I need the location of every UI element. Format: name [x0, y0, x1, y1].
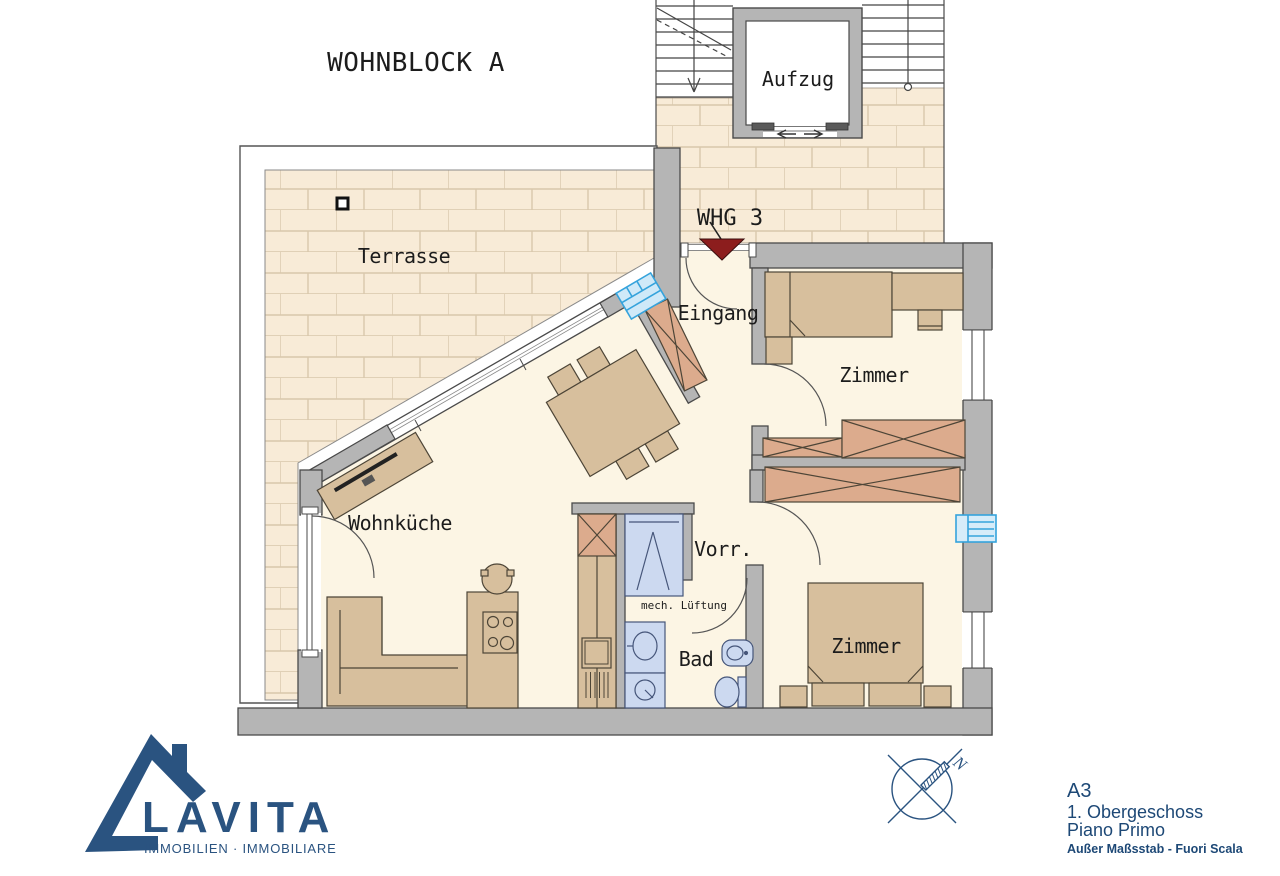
elevator: Aufzug — [733, 8, 862, 138]
building-title: WOHNBLOCK A — [327, 48, 505, 78]
stairs-left — [656, 0, 733, 97]
compass-rose: N — [888, 749, 972, 823]
floor-name-german: 1. Obergeschoss — [1067, 802, 1203, 822]
double-bed — [808, 583, 923, 683]
desk-chair — [918, 310, 942, 330]
bed — [765, 272, 892, 337]
bath-label: Bad — [679, 647, 714, 671]
nightstand — [924, 686, 951, 707]
wardrobe — [842, 420, 965, 458]
kitchen-tall-cabinet — [578, 514, 616, 708]
north-label: N — [949, 752, 972, 776]
wardrobe — [765, 467, 960, 502]
floor-name-italian: Piano Primo — [1067, 820, 1165, 840]
wall-bottom — [238, 708, 992, 735]
wall-bath-top — [572, 503, 694, 514]
window-room-bottom — [962, 612, 993, 668]
wardrobe — [763, 438, 842, 457]
stairs-right — [862, 0, 944, 91]
nightstand — [780, 686, 807, 707]
toilet — [715, 677, 746, 707]
room-top-label: Zimmer — [839, 363, 909, 387]
floorplan-page: Aufzug Terrasse — [0, 0, 1280, 876]
terrace-door-band — [301, 507, 321, 657]
washing-machine — [625, 673, 665, 708]
shower — [625, 514, 683, 596]
kitchen-sink — [482, 564, 512, 594]
nightstand — [766, 337, 792, 364]
scale-note: Außer Maßsstab - Fuori Scala — [1067, 842, 1244, 856]
entrance-label: Eingang — [678, 301, 759, 325]
hall-label: Vorr. — [694, 537, 752, 561]
brand-subtitle: IMMOBILIEN · IMMOBILIARE — [144, 841, 337, 856]
handrail-post — [905, 84, 912, 91]
elevator-door-panel — [826, 123, 848, 130]
wall-hall — [750, 470, 763, 502]
wall-right — [963, 400, 992, 612]
wall-hall — [746, 565, 763, 708]
living-kitchen-label: Wohnküche — [348, 511, 452, 535]
sheet-info: A3 1. Obergeschoss Piano Primo Außer Maß… — [1067, 780, 1244, 856]
wall-left-stub — [298, 650, 322, 708]
apartment-label: WHG 3 — [697, 206, 763, 231]
elevator-label: Aufzug — [762, 67, 834, 91]
radiator-bedroom — [956, 515, 996, 542]
terrace-drain — [337, 198, 348, 209]
wall-bath-kitchen — [616, 505, 625, 708]
lavita-logo: LAVITA IMMOBILIEN · IMMOBILIARE — [85, 734, 337, 856]
wall-right — [963, 243, 992, 330]
pillow — [812, 683, 864, 706]
elevator-door-panel — [752, 123, 774, 130]
desk — [892, 273, 963, 310]
window-room-top — [962, 330, 993, 400]
bidet — [722, 640, 753, 666]
pillow — [869, 683, 921, 706]
vent-label: mech. Lüftung — [641, 599, 727, 612]
floorplan-drawing: Aufzug Terrasse — [0, 0, 1280, 876]
footer: LAVITA IMMOBILIEN · IMMOBILIARE N A3 1. … — [85, 734, 1244, 856]
wall-stairwell-side — [654, 148, 680, 307]
wall-top — [750, 243, 992, 268]
brand-name: LAVITA — [142, 793, 336, 842]
sheet-number: A3 — [1067, 780, 1091, 802]
room-bottom-label: Zimmer — [831, 634, 901, 658]
terrace-label: Terrasse — [358, 244, 450, 268]
washbasin — [625, 622, 665, 673]
